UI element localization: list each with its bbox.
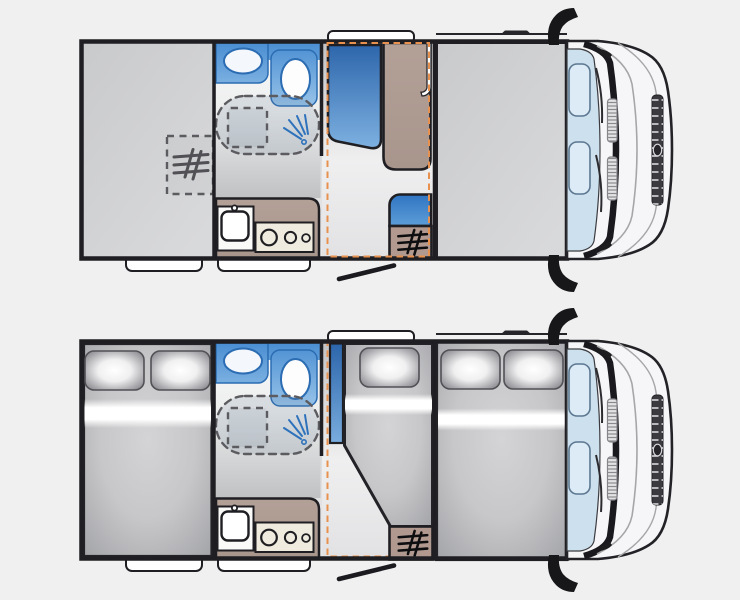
pillow [151, 351, 210, 390]
kitchen [216, 499, 319, 559]
entry-door-line [339, 266, 394, 280]
side-seat [390, 195, 432, 227]
floorplan-day [0, 0, 740, 300]
drop-down-bed-stowed [437, 43, 567, 259]
washroom [216, 41, 322, 198]
washroom [216, 341, 322, 498]
pillow [360, 348, 419, 387]
bed-sheet [85, 399, 212, 428]
bed-sheet [438, 409, 565, 431]
pillow [85, 351, 144, 390]
heater-cabinet [390, 226, 432, 259]
heater-marker [167, 136, 213, 194]
kitchen [216, 199, 319, 259]
drop-down-double-bed [437, 342, 567, 560]
bench-backrest [330, 344, 343, 444]
driver-cab [548, 8, 672, 292]
bed-sheet [345, 394, 432, 415]
pillow [504, 350, 563, 389]
dinette-table [384, 43, 431, 170]
driver-cab [548, 308, 672, 592]
pillow [441, 350, 500, 389]
dinette-bench [328, 45, 381, 148]
heater-cabinet [390, 527, 433, 560]
entry-door-line [339, 566, 394, 580]
floorplan-night [0, 300, 740, 600]
floorplan-canvas [0, 0, 740, 600]
rear-double-bed [84, 344, 213, 557]
